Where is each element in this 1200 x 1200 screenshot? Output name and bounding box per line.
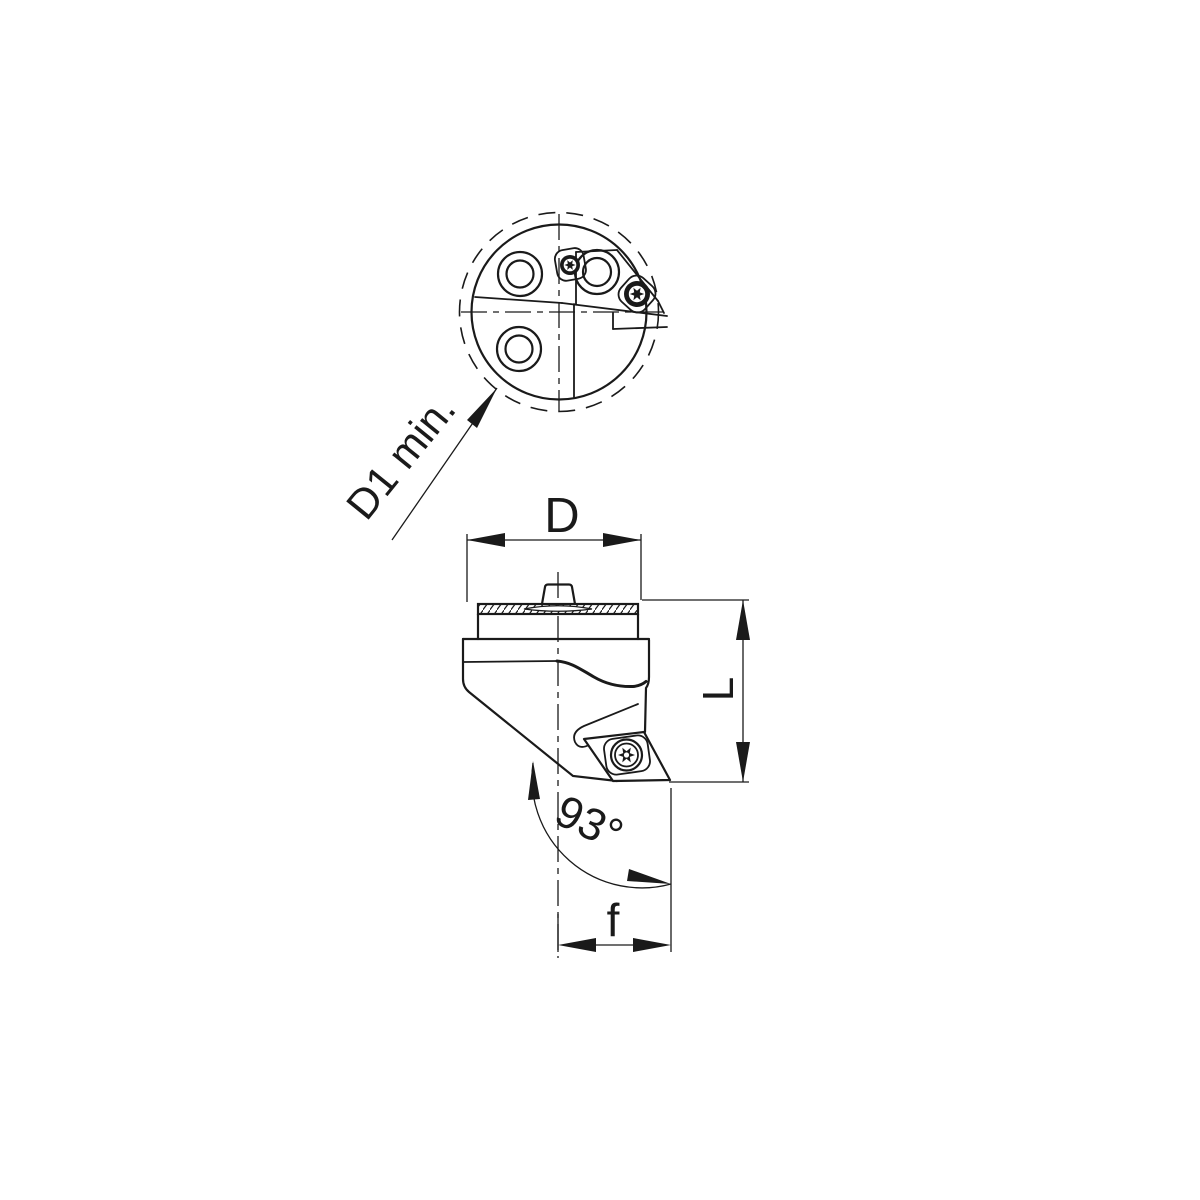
arrowhead-up — [528, 761, 540, 800]
label-diameter: D — [544, 489, 579, 543]
label-feed: f — [607, 894, 620, 946]
top-view — [460, 213, 669, 412]
arrowhead-left — [558, 938, 596, 952]
counterbore-hole-top-left — [498, 252, 542, 296]
tool-holder-drawing: D1 min. — [0, 0, 1200, 1200]
leader-arrowhead — [467, 388, 497, 428]
dimension-l: L — [642, 600, 750, 782]
arrowhead-right — [603, 533, 641, 547]
arrowhead-down — [736, 742, 750, 782]
torx-screw-icon-insert — [611, 740, 642, 771]
arrowhead-right — [633, 938, 671, 952]
arrowhead-left — [467, 533, 505, 547]
technical-drawing-canvas: D1 min. — [0, 0, 1200, 1200]
label-d1-min: D1 min. — [337, 386, 465, 528]
arrowhead-right — [627, 869, 671, 884]
front-face-line — [464, 661, 557, 662]
counterbore-hole-top-right — [575, 250, 619, 294]
label-angle: 93° — [547, 785, 631, 861]
arrowhead-up — [736, 600, 750, 640]
neck-blend-curve — [557, 661, 646, 687]
label-length: L — [694, 677, 743, 701]
side-view — [463, 572, 670, 958]
counterbore-hole-bottom-left — [497, 327, 541, 371]
body-right-outline — [645, 640, 649, 732]
d1-min-leader: D1 min. — [337, 386, 497, 540]
